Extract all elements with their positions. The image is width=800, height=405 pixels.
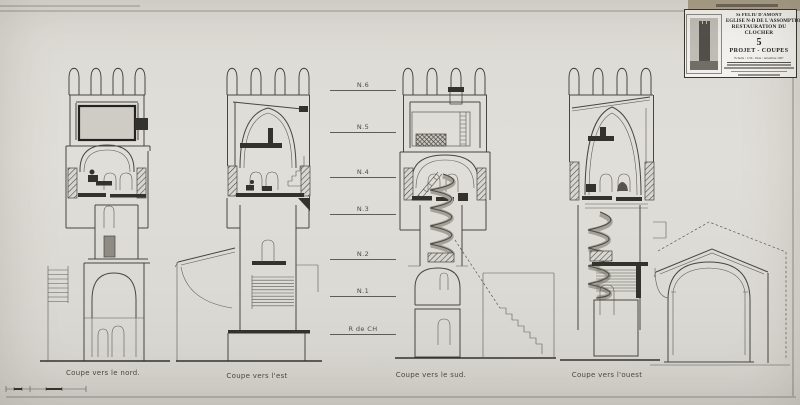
section-caption: Coupe vers l'est xyxy=(226,372,287,380)
level-label: N.1 xyxy=(330,287,396,297)
tower-silhouette xyxy=(699,24,710,62)
microtext-line xyxy=(738,74,780,76)
section-est-drawing xyxy=(175,68,322,361)
section-caption: Coupe vers le nord. xyxy=(66,369,140,377)
sheet-edges xyxy=(0,6,796,397)
title-block-divider xyxy=(727,62,791,63)
tower-photo-image xyxy=(690,18,718,70)
section-ouest-drawing xyxy=(560,68,668,360)
photo-ground xyxy=(690,61,718,70)
level-label: N.3 xyxy=(330,205,396,215)
section-nord-drawing xyxy=(40,68,170,361)
section-caption: Coupe vers le sud. xyxy=(396,371,466,379)
scanned-architectural-drawing: .ln{stroke:#474640;fill:none;stroke-widt… xyxy=(0,0,800,405)
level-label: N.4 xyxy=(330,168,396,178)
microtext-line xyxy=(727,64,791,66)
microtext-line xyxy=(724,67,794,69)
level-label: N.2 xyxy=(330,250,396,260)
sections-linework: .ln{stroke:#474640;fill:none;stroke-widt… xyxy=(0,0,800,405)
sheet-subtitle: PROJET - COUPES xyxy=(723,48,795,55)
level-label: N.6 xyxy=(330,81,396,91)
project-title-line1: EGLISE N-D DE L'ASSOMPTION xyxy=(726,18,792,24)
section-caption: Coupe vers l'ouest xyxy=(572,371,642,379)
level-label: R de CH xyxy=(330,325,396,335)
microtext-line xyxy=(731,71,787,73)
section-sud-drawing xyxy=(395,68,556,358)
commune-name: St FELIU D'AMONT xyxy=(723,12,795,17)
level-label: N.5 xyxy=(330,123,396,133)
title-block: St FELIU D'AMONT EGLISE N-D DE L'ASSOMPT… xyxy=(684,9,797,78)
scale-date-line: Echelle : 1/50 - Date : décembre 1987 xyxy=(727,56,792,60)
tower-photo xyxy=(686,14,722,74)
sheet-number: 5 xyxy=(723,37,795,48)
nave-section-drawing xyxy=(650,222,790,365)
scale-bar xyxy=(6,386,86,392)
project-title-line2: RESTAURATION DU CLOCHER xyxy=(723,24,795,36)
